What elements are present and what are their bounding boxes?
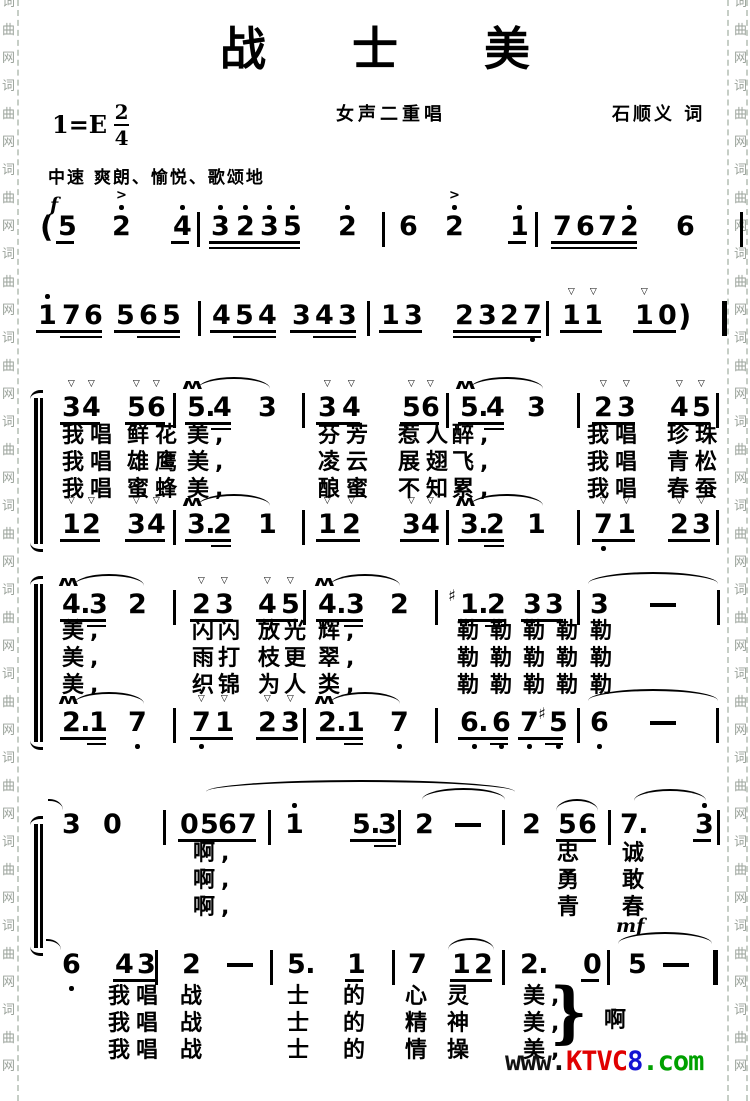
staccato-triangle: ▽ bbox=[221, 577, 227, 586]
staccato-triangle: ▽ bbox=[676, 380, 682, 389]
lyric-text: 啊, bbox=[193, 870, 235, 892]
lyric-text: 我唱 bbox=[62, 425, 118, 447]
note-number: 6 bbox=[578, 811, 596, 838]
note-number: 2▽ bbox=[342, 511, 360, 538]
watermark-char: 曲 bbox=[2, 444, 18, 457]
lyric-text: 情 bbox=[405, 1040, 433, 1062]
lyric-text: 雨 bbox=[192, 648, 220, 670]
watermark-char: 网 bbox=[2, 724, 18, 737]
note-number: 1▽ bbox=[617, 511, 635, 538]
beam-underline bbox=[316, 737, 363, 740]
lyric-text: 诚 bbox=[622, 843, 650, 865]
note-number: 3 bbox=[590, 591, 608, 618]
slur-arc bbox=[198, 377, 270, 390]
sharp-sign: ♯ bbox=[538, 706, 545, 722]
note-number: 4▽ bbox=[147, 511, 165, 538]
barline bbox=[367, 301, 370, 336]
note-number: 1▽ bbox=[635, 302, 653, 329]
dynamic-marking: f bbox=[50, 196, 58, 215]
lyric-text: 啊, bbox=[193, 897, 235, 919]
beam-underline bbox=[114, 330, 180, 333]
watermark-char: 网 bbox=[2, 1060, 18, 1073]
watermark-char: 词 bbox=[2, 164, 18, 177]
title-char-2: 士 bbox=[352, 26, 398, 72]
octave-dot-above bbox=[627, 205, 632, 210]
octave-dot-above bbox=[452, 205, 457, 210]
note-number: 6. bbox=[460, 709, 488, 736]
watermark-char: 词 bbox=[2, 668, 18, 681]
footer-dotcom: .com bbox=[642, 1046, 703, 1077]
watermark-char: 词 bbox=[2, 80, 18, 93]
page-title: 战 士 美 bbox=[0, 26, 750, 72]
beam-underline bbox=[374, 845, 396, 848]
beam-underline bbox=[137, 336, 180, 339]
watermark-char: 曲 bbox=[2, 360, 18, 373]
note-number: 3▽ bbox=[617, 394, 635, 421]
note-number: 1 bbox=[381, 302, 399, 329]
slur-arc bbox=[448, 938, 494, 951]
note-number: 3▽ bbox=[215, 591, 233, 618]
note-number: 1 bbox=[347, 951, 365, 978]
barline bbox=[577, 510, 580, 545]
note-number: 6 bbox=[590, 709, 608, 736]
barline bbox=[382, 212, 385, 247]
beam-underline bbox=[633, 330, 676, 333]
dynamic-marking: mf bbox=[616, 917, 644, 936]
time-denominator: 4 bbox=[115, 128, 129, 148]
system-bracket bbox=[34, 584, 43, 742]
time-numerator: 2 bbox=[115, 102, 129, 122]
key-signature: 1=E 2 4 bbox=[52, 102, 129, 148]
note-number: 7 bbox=[390, 709, 408, 736]
watermark-char: 曲 bbox=[2, 276, 18, 289]
beam-underline bbox=[592, 539, 635, 542]
lyric-text: 啊 bbox=[604, 1010, 632, 1032]
octave-dot-below bbox=[527, 744, 532, 749]
note-number: 5 bbox=[235, 302, 253, 329]
accent-mark: > bbox=[449, 189, 459, 202]
note-number: 1▽ bbox=[562, 302, 580, 329]
side-watermark-left: 词曲网词曲网词曲网词曲网词曲网词曲网词曲网词曲网词曲网词曲网词曲网词曲网词曲网 bbox=[2, 0, 18, 1073]
watermark-char: 曲 bbox=[2, 528, 18, 541]
note-number: 2. bbox=[62, 709, 90, 736]
mordent-mark: ʍ bbox=[314, 575, 335, 589]
beam-underline bbox=[290, 330, 356, 333]
barline bbox=[717, 590, 720, 625]
beam-underline bbox=[210, 330, 276, 333]
watermark-char: 网 bbox=[2, 640, 18, 653]
barline bbox=[740, 212, 743, 247]
lyric-text: 光 bbox=[284, 621, 312, 643]
note-number: 1▽ bbox=[584, 302, 602, 329]
barline bbox=[198, 301, 201, 336]
octave-dot-below bbox=[199, 744, 204, 749]
note-number: 1 bbox=[258, 511, 276, 538]
note-number: 5. bbox=[352, 811, 380, 838]
watermark-char: 词 bbox=[2, 920, 18, 933]
lyric-text: 敢 bbox=[622, 870, 650, 892]
octave-dot-above bbox=[267, 205, 272, 210]
note-number: 6 bbox=[676, 213, 694, 240]
lyric-text: 勒 bbox=[490, 648, 518, 670]
barline bbox=[716, 708, 719, 743]
lyric-text: 的 bbox=[343, 1040, 371, 1062]
lyric-text: 醉, bbox=[452, 425, 494, 447]
note-number: 7 bbox=[598, 213, 616, 240]
dashed-border-left bbox=[17, 0, 19, 1101]
lyric-text: 士 bbox=[287, 1013, 315, 1035]
note-number: 2 bbox=[415, 811, 433, 838]
note-number: 2▽ bbox=[82, 511, 100, 538]
staccato-triangle: ▽ bbox=[698, 380, 704, 389]
octave-dot-above bbox=[45, 294, 50, 299]
barline bbox=[717, 810, 720, 845]
watermark-char: 曲 bbox=[2, 1032, 18, 1045]
barline bbox=[577, 393, 580, 428]
note-number: 3 bbox=[695, 811, 713, 838]
octave-dot-above bbox=[119, 205, 124, 210]
note-number: 5 bbox=[58, 213, 76, 240]
mordent-mark: ʍ bbox=[58, 575, 79, 589]
note-number: 4 bbox=[315, 302, 333, 329]
watermark-char: 曲 bbox=[2, 696, 18, 709]
lyric-text: 打 bbox=[218, 648, 246, 670]
watermark-char: 曲 bbox=[2, 192, 18, 205]
lyric-text: 勒 bbox=[457, 675, 485, 697]
lyric-text: 累, bbox=[452, 479, 494, 501]
lyric-text: 勒 bbox=[556, 648, 584, 670]
note-number: 1 bbox=[38, 302, 56, 329]
octave-dot-below bbox=[69, 986, 74, 991]
lyric-text: 我唱 bbox=[587, 479, 643, 501]
lyric-text: 青松 bbox=[667, 452, 723, 474]
lyric-text: 辉, bbox=[318, 621, 360, 643]
octave-dot-below bbox=[601, 546, 606, 551]
note-number: 3. bbox=[187, 511, 215, 538]
staccato-triangle: ▽ bbox=[153, 380, 159, 389]
octave-dot-above bbox=[243, 205, 248, 210]
barline bbox=[577, 708, 580, 743]
lyric-text: 勒 bbox=[490, 621, 518, 643]
staccato-triangle: ▽ bbox=[427, 380, 433, 389]
barline bbox=[392, 950, 395, 985]
note-number: 2 bbox=[455, 302, 473, 329]
beam-underline bbox=[458, 539, 504, 542]
lyric-text: 勒 bbox=[523, 621, 551, 643]
staccato-triangle: ▽ bbox=[324, 380, 330, 389]
note-number: 4 bbox=[173, 213, 191, 240]
staccato-triangle: ▽ bbox=[198, 577, 204, 586]
slur-arc bbox=[330, 574, 400, 587]
watermark-char: 网 bbox=[2, 892, 18, 905]
lyric-text: 芬芳 bbox=[318, 425, 374, 447]
verse-brace: } bbox=[550, 979, 587, 1046]
note-number: 6 bbox=[492, 709, 510, 736]
note-number: 0 bbox=[180, 811, 198, 838]
watermark-char: 网 bbox=[2, 976, 18, 989]
lyric-text: 操 bbox=[447, 1040, 475, 1062]
title-char-3: 美 bbox=[484, 26, 530, 72]
lyric-text: 战 bbox=[180, 1040, 208, 1062]
lyric-text: 锦 bbox=[218, 675, 246, 697]
final-barline bbox=[713, 950, 718, 985]
lyric-text: 灵 bbox=[447, 986, 475, 1008]
beam-underline bbox=[693, 839, 711, 842]
footer-www: www. bbox=[505, 1046, 566, 1077]
barline bbox=[173, 510, 176, 545]
lyric-text: 凌云 bbox=[318, 452, 374, 474]
note-number: 2▽ bbox=[594, 394, 612, 421]
dashed-border-right bbox=[727, 0, 729, 1101]
octave-dot-below bbox=[135, 744, 140, 749]
octave-dot-below bbox=[397, 744, 402, 749]
staccato-triangle: ▽ bbox=[348, 380, 354, 389]
octave-dot-above bbox=[345, 205, 350, 210]
note-number: 3 bbox=[545, 591, 563, 618]
barline bbox=[302, 393, 305, 428]
note-number: 2 bbox=[128, 591, 146, 618]
barline bbox=[716, 510, 719, 545]
note-number: 2 bbox=[338, 213, 356, 240]
note-number: 4 bbox=[115, 951, 133, 978]
note-number: 7▽ bbox=[594, 511, 612, 538]
note-number: 7▽ bbox=[192, 709, 210, 736]
beam-underline bbox=[190, 737, 233, 740]
note-number: 5 bbox=[628, 951, 646, 978]
note-number: 7 bbox=[238, 811, 256, 838]
note-number: 2. bbox=[318, 709, 346, 736]
footer-eight: 8 bbox=[627, 1046, 642, 1077]
note-number: 5. bbox=[287, 951, 315, 978]
note-number: 3 bbox=[258, 394, 276, 421]
note-number: 2▽ bbox=[670, 511, 688, 538]
lyric-text: 啊, bbox=[193, 843, 235, 865]
final-barline bbox=[722, 301, 727, 336]
note-number: 5. bbox=[460, 394, 488, 421]
note-number: 2> bbox=[112, 213, 130, 240]
lyric-text: 战 bbox=[180, 986, 208, 1008]
lyric-text: 战 bbox=[180, 1013, 208, 1035]
note-number: 3▽ bbox=[127, 511, 145, 538]
staccato-triangle: ▽ bbox=[600, 380, 606, 389]
note-number: 0 bbox=[103, 811, 121, 838]
slur-arc bbox=[588, 572, 718, 585]
watermark-char: 网 bbox=[2, 136, 18, 149]
tie-hook bbox=[46, 939, 61, 950]
note-number: 3 bbox=[89, 591, 107, 618]
note-number: 2▽ bbox=[192, 591, 210, 618]
note-number: 6 bbox=[576, 213, 594, 240]
note-number: 3▽ bbox=[318, 394, 336, 421]
note-number: 4. bbox=[62, 591, 90, 618]
beam-underline bbox=[233, 336, 276, 339]
lyric-text: 美, bbox=[62, 675, 104, 697]
beam-underline bbox=[508, 241, 526, 244]
key-label: 1=E bbox=[52, 113, 107, 137]
lyric-text: 勇 bbox=[557, 870, 585, 892]
note-number: 2 bbox=[522, 811, 540, 838]
beam-underline bbox=[56, 241, 74, 244]
barline bbox=[197, 212, 200, 247]
beam-underline bbox=[316, 539, 360, 542]
lyric-text: 我唱 bbox=[108, 1040, 164, 1062]
lyric-text: 织 bbox=[192, 675, 220, 697]
note-number: 2. bbox=[520, 951, 548, 978]
beam-underline bbox=[345, 979, 363, 982]
lyric-text: 美, bbox=[62, 648, 104, 670]
lyric-text: 我唱 bbox=[62, 452, 118, 474]
note-number: 7 bbox=[520, 709, 538, 736]
beam-underline bbox=[379, 330, 422, 333]
tempo-marking: 中速 爽朗、愉悦、歌颂地 bbox=[48, 170, 265, 187]
staccato-triangle: ▽ bbox=[68, 380, 74, 389]
watermark-char: 网 bbox=[2, 220, 18, 233]
note-number: 3 bbox=[338, 302, 356, 329]
note-number: 1▽ bbox=[62, 511, 80, 538]
staccato-triangle: ▽ bbox=[408, 380, 414, 389]
slur-arc bbox=[634, 789, 706, 802]
barline bbox=[435, 708, 438, 743]
note-number: 2 bbox=[500, 302, 518, 329]
lyric-text: 美, bbox=[187, 479, 229, 501]
note-number: 2 bbox=[487, 591, 505, 618]
note-number: 6 bbox=[62, 951, 80, 978]
slur-arc bbox=[74, 574, 144, 587]
lyric-text: 惹人 bbox=[398, 425, 454, 447]
lyric-text: 放 bbox=[258, 621, 286, 643]
note-number: 1 bbox=[89, 709, 107, 736]
parenthesis-mark: ( bbox=[40, 213, 53, 242]
held-dash bbox=[227, 963, 253, 967]
octave-dot-below bbox=[597, 744, 602, 749]
barline bbox=[502, 950, 505, 985]
lyric-text: 珍珠 bbox=[667, 425, 723, 447]
watermark-char: 网 bbox=[2, 304, 18, 317]
system-bracket bbox=[34, 398, 43, 544]
lyric-text: 勒 bbox=[523, 648, 551, 670]
tie-hook bbox=[48, 799, 63, 810]
note-number: 4. bbox=[318, 591, 346, 618]
watermark-char: 网 bbox=[2, 556, 18, 569]
note-number: 3 bbox=[260, 213, 278, 240]
beam-underline bbox=[171, 241, 189, 244]
barline bbox=[173, 708, 176, 743]
note-number: 3 bbox=[523, 591, 541, 618]
lyric-text: 勒 bbox=[556, 621, 584, 643]
watermark-char: 曲 bbox=[2, 780, 18, 793]
mordent-mark: ʍ bbox=[455, 378, 476, 392]
note-number: 2 bbox=[213, 511, 231, 538]
note-number: 2 bbox=[236, 213, 254, 240]
beam-underline bbox=[60, 336, 102, 339]
beam-underline bbox=[453, 336, 541, 339]
lyric-text: 展翅 bbox=[398, 452, 454, 474]
held-dash bbox=[455, 823, 481, 827]
lyric-text: 闪 bbox=[218, 621, 246, 643]
beam-underline bbox=[125, 539, 165, 542]
beam-underline bbox=[458, 737, 508, 740]
note-number: 5 bbox=[200, 811, 218, 838]
note-number: 5 bbox=[116, 302, 134, 329]
held-dash bbox=[650, 721, 676, 725]
note-number: 3▽ bbox=[692, 511, 710, 538]
barline bbox=[303, 708, 306, 743]
watermark-char: 网 bbox=[2, 808, 18, 821]
time-signature: 2 4 bbox=[114, 102, 129, 148]
lyric-text: 勒 bbox=[556, 675, 584, 697]
note-number: 3. bbox=[460, 511, 488, 538]
note-number: 5. bbox=[187, 394, 215, 421]
lyric-text: 美, bbox=[62, 621, 104, 643]
lyric-text: 忠 bbox=[557, 843, 585, 865]
beam-underline bbox=[484, 545, 504, 548]
note-number: 6▽ bbox=[147, 394, 165, 421]
footer-watermark: www.KTVC8.com bbox=[505, 1048, 703, 1075]
barline bbox=[163, 810, 166, 845]
watermark-char: 词 bbox=[2, 500, 18, 513]
note-number: 4▽ bbox=[258, 591, 276, 618]
staccato-triangle: ▽ bbox=[568, 288, 574, 297]
note-number: 1▽ bbox=[215, 709, 233, 736]
lyric-text: 我唱 bbox=[587, 425, 643, 447]
note-number: 3 bbox=[527, 394, 545, 421]
barline bbox=[608, 810, 611, 845]
beam-underline bbox=[453, 330, 541, 333]
note-number: 3 bbox=[478, 302, 496, 329]
watermark-char: 曲 bbox=[2, 948, 18, 961]
lyric-text: 勒 bbox=[490, 675, 518, 697]
lyric-text: 春蚕 bbox=[667, 479, 723, 501]
beam-underline bbox=[211, 545, 231, 548]
lyric-text: 勒 bbox=[457, 648, 485, 670]
note-number: 2 bbox=[486, 511, 504, 538]
beam-underline bbox=[551, 241, 637, 244]
lyric-text: 的 bbox=[343, 986, 371, 1008]
note-number: 5▽ bbox=[402, 394, 420, 421]
note-number: 1 bbox=[527, 511, 545, 538]
lyric-text: 人 bbox=[284, 675, 312, 697]
footer-ktvc: KTVC bbox=[566, 1046, 627, 1077]
note-number: 5 bbox=[283, 213, 301, 240]
note-number: 1 bbox=[452, 951, 470, 978]
note-number: 4 bbox=[258, 302, 276, 329]
watermark-char: 词 bbox=[2, 332, 18, 345]
note-number: 4▽ bbox=[82, 394, 100, 421]
watermark-char: 词 bbox=[2, 836, 18, 849]
note-number: 2 bbox=[182, 951, 200, 978]
barline bbox=[155, 950, 158, 985]
note-number: 1 bbox=[285, 811, 303, 838]
note-number: 0 bbox=[658, 302, 676, 329]
watermark-char: 网 bbox=[2, 388, 18, 401]
beam-underline bbox=[551, 247, 637, 250]
beam-underline bbox=[313, 336, 356, 339]
note-number: 4 bbox=[486, 394, 504, 421]
beam-underline bbox=[60, 737, 106, 740]
note-number: 7 bbox=[128, 709, 146, 736]
note-number: 2▽ bbox=[258, 709, 276, 736]
note-number: 6 bbox=[218, 811, 236, 838]
lyric-text: 更 bbox=[284, 648, 312, 670]
note-number: 5 bbox=[162, 302, 180, 329]
accent-mark: > bbox=[116, 189, 126, 202]
watermark-char: 曲 bbox=[2, 108, 18, 121]
beam-underline bbox=[113, 979, 155, 982]
note-number: 3 bbox=[292, 302, 310, 329]
barline bbox=[535, 212, 538, 247]
lyric-text: 我唱 bbox=[108, 1013, 164, 1035]
lyric-text: 士 bbox=[287, 986, 315, 1008]
